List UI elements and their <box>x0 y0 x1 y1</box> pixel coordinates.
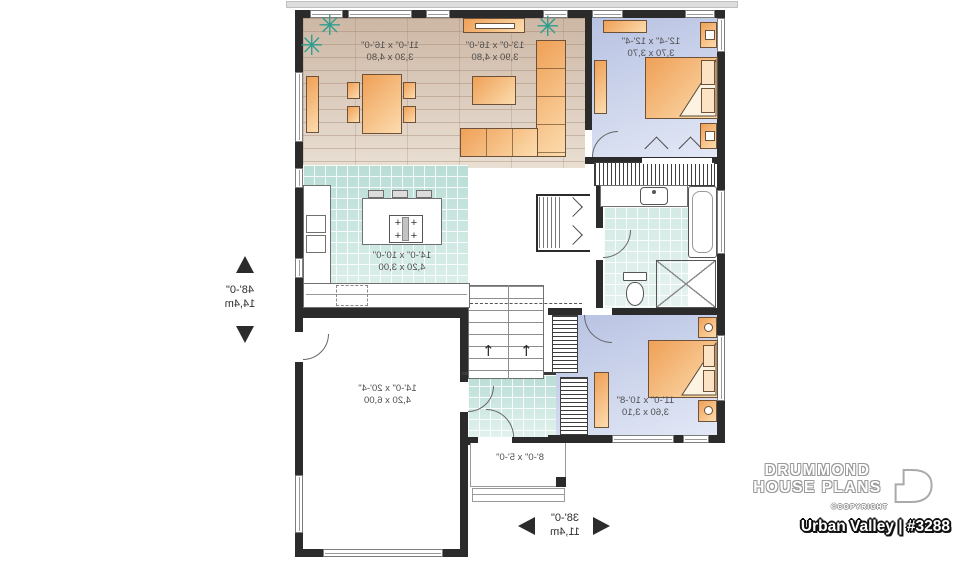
dresser <box>603 20 647 33</box>
arrow-right-icon <box>593 517 610 535</box>
closet-opening <box>642 158 712 164</box>
counter-line <box>306 294 467 295</box>
patio-door-window <box>348 10 412 18</box>
kitchen-sink <box>306 215 326 233</box>
garage-size-m: 4,20 x 6,00 <box>340 395 435 407</box>
garage-label: 14'-0" x 20'-4" 4,20 x 6,00 <box>340 383 435 406</box>
bedroom2-label: 11'-0" x 10'-8" 3,60 x 3,10 <box>598 395 693 418</box>
bedroom1-label: 12'-4" x 12'-4" 3,70 x 3,70 <box>597 36 705 59</box>
dining-size-ft: 11'-0" x 16'-0" <box>330 40 450 52</box>
dining-chair <box>403 82 416 99</box>
plan-title: Urban Valley | #3288 <box>745 518 950 536</box>
burner-icon: + <box>411 218 417 228</box>
bedroom1-size-m: 3,70 x 3,70 <box>597 48 705 60</box>
window <box>717 18 725 52</box>
width-ft: 38'-0" <box>540 512 590 526</box>
window <box>295 72 303 142</box>
window <box>612 435 674 443</box>
width-m: 11,4m <box>540 526 590 540</box>
porch-step <box>472 488 565 495</box>
porch <box>470 443 566 487</box>
brand-line1: DRUMMOND <box>750 463 885 480</box>
burner-icon: + <box>411 231 417 241</box>
bedroom2-size-ft: 11'-0" x 10'-8" <box>598 395 693 407</box>
dining-table <box>362 74 402 134</box>
depth-ft: 48'-0" <box>208 284 272 298</box>
kitchen-size-ft: 14'-0" x 10'-0" <box>352 250 452 262</box>
porch-step <box>472 495 565 502</box>
shower-stall <box>656 260 716 308</box>
lamp <box>705 30 715 40</box>
floor-plan-page: ↑ ↑ + + + + <box>0 0 960 569</box>
living-room-label: 13'-0" x 16'-0" 3,90 x 4,80 <box>440 40 550 63</box>
stairs-up-arrow-icon: ↑ <box>482 342 495 360</box>
window <box>717 190 725 254</box>
brand-line2: HOUSE PLANS <box>750 480 885 497</box>
window <box>295 258 303 278</box>
window <box>683 435 709 443</box>
window <box>685 10 715 18</box>
bar-stool <box>368 190 384 198</box>
garage-side-door-opening <box>295 332 303 362</box>
toilet-bowl <box>626 282 644 306</box>
garage-size-ft: 14'-0" x 20'-4" <box>340 383 435 395</box>
stairs-up-arrow-icon: ↑ <box>520 342 533 360</box>
lamp <box>705 131 715 141</box>
armchair <box>472 76 516 105</box>
drummond-logo-icon <box>886 462 934 510</box>
dining-chair <box>347 82 360 99</box>
sideboard <box>306 76 319 133</box>
wall <box>596 260 603 308</box>
roof-overhang-line <box>286 1 738 8</box>
dining-size-m: 3,30 x 4,80 <box>330 52 450 64</box>
depth-m: 14,4m <box>208 298 272 312</box>
arrow-left-icon <box>518 517 535 535</box>
bar-stool <box>392 190 408 198</box>
wall <box>612 308 725 315</box>
living-size-ft: 13'-0" x 16'-0" <box>440 40 550 52</box>
wall <box>548 308 582 315</box>
living-size-m: 3,90 x 4,80 <box>440 52 550 64</box>
pantry-shelves <box>539 197 561 248</box>
garage-side-door-arc <box>303 334 329 360</box>
faucet-dot <box>652 190 656 194</box>
lamp <box>704 406 713 415</box>
hall-closet <box>552 315 578 373</box>
window <box>426 10 450 18</box>
pillow <box>701 88 715 113</box>
pillow <box>703 345 715 367</box>
pantry <box>536 194 590 252</box>
porch-label: 8'-0" x 5'-0" <box>482 452 558 464</box>
depth-dimension: 48'-0" 14,4m <box>208 284 272 311</box>
kitchen-counter-bottom <box>303 283 470 308</box>
bedroom1-closet <box>594 162 715 186</box>
dresser <box>594 60 607 114</box>
stair-divider <box>508 285 509 379</box>
entry-closet <box>560 377 588 435</box>
pillow <box>703 370 715 392</box>
pillow <box>701 60 715 85</box>
toilet-tank <box>623 272 647 281</box>
burner-icon: + <box>395 218 401 228</box>
sectional-sofa <box>460 128 538 157</box>
garage-door-opening <box>323 549 443 557</box>
bathtub-inner <box>692 191 713 253</box>
arrow-up-icon <box>236 256 254 273</box>
tv-slot <box>475 23 515 29</box>
kitchen-sink <box>306 235 326 253</box>
kitchen-size-m: 4,20 x 3,00 <box>352 262 452 274</box>
ceiling-line-dashed <box>470 303 582 304</box>
kitchen-label: 14'-0" x 10'-0" 4,20 x 3,00 <box>352 250 452 273</box>
porch-column <box>556 477 566 487</box>
bar-stool <box>416 190 432 198</box>
dining-chair <box>403 106 416 123</box>
staircase <box>468 285 544 379</box>
dishwasher <box>336 285 368 306</box>
arrow-down-icon <box>236 326 254 343</box>
plant-icon: ✳ <box>536 13 559 41</box>
bedroom2-size-m: 3,60 x 3,10 <box>598 407 693 419</box>
window <box>295 168 303 188</box>
porch-size-ft: 8'-0" x 5'-0" <box>482 452 558 464</box>
window <box>717 335 725 401</box>
bedroom1-size-ft: 12'-4" x 12'-4" <box>597 36 705 48</box>
window <box>592 10 623 18</box>
lamp <box>704 323 713 332</box>
burner-icon: + <box>395 231 401 241</box>
wall <box>585 10 592 130</box>
stove-center-strip <box>402 217 409 241</box>
width-dimension: 38'-0" 11,4m <box>540 512 590 539</box>
window <box>295 475 303 533</box>
dining-chair <box>347 106 360 123</box>
copyright-text: ©COPYRIGHT <box>800 504 888 511</box>
dining-room-label: 11'-0" x 16'-0" 3,30 x 4,80 <box>330 40 450 63</box>
brand-name: DRUMMOND HOUSE PLANS <box>750 463 885 496</box>
plant-icon: ✳ <box>300 32 323 60</box>
wall <box>460 412 468 549</box>
